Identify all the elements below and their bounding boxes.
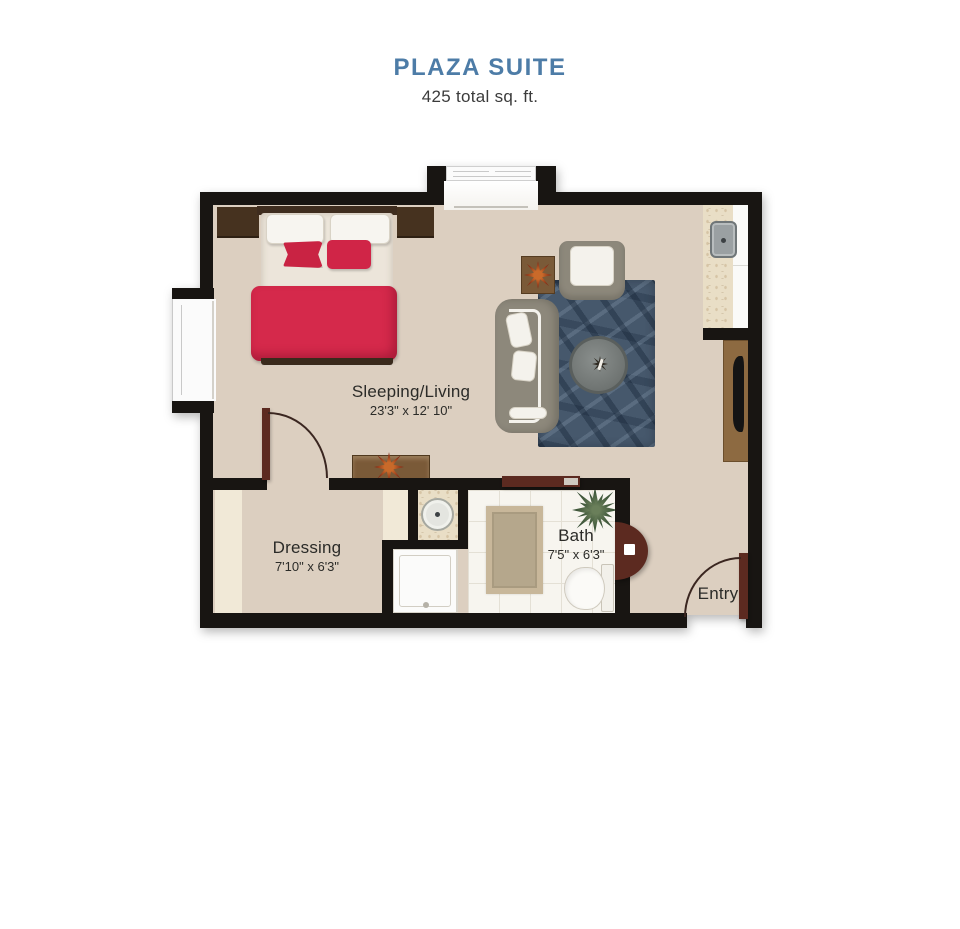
sliding-door-handle bbox=[564, 478, 578, 485]
armchair-cushion bbox=[570, 246, 614, 286]
wall-window-bay-right-riser bbox=[535, 166, 556, 205]
bath-sliding-door bbox=[502, 476, 580, 487]
wall-right bbox=[748, 192, 762, 628]
armchair bbox=[559, 241, 625, 300]
kitchenette-faucet bbox=[721, 238, 726, 243]
shower bbox=[392, 548, 458, 614]
bed bbox=[257, 206, 397, 366]
window-mullion bbox=[495, 171, 531, 172]
wall-left-lower bbox=[200, 410, 213, 628]
bed-blanket bbox=[251, 286, 397, 361]
bed-pillow-left bbox=[266, 214, 324, 244]
window-sill-line bbox=[454, 206, 528, 208]
room-label-bath: Bath 7'5" x 6'3" bbox=[548, 526, 605, 562]
shower-pan-line bbox=[399, 555, 451, 607]
window-mullion bbox=[453, 176, 531, 177]
wall-dressing-top-left bbox=[213, 478, 267, 490]
nightstand-right bbox=[397, 207, 434, 238]
wall-vanity-bottom bbox=[382, 540, 468, 549]
sofa-pillow-middle bbox=[510, 350, 537, 382]
top-bay-window bbox=[446, 166, 536, 181]
nightstand-left bbox=[217, 207, 259, 238]
room-name: Bath bbox=[548, 526, 605, 546]
round-coffee-table bbox=[569, 336, 628, 394]
vanity-faucet bbox=[435, 512, 440, 517]
floor-plan: Sleeping/Living 23'3" x 12' 10" Dressing… bbox=[0, 0, 960, 929]
window-mullion bbox=[453, 171, 489, 172]
shower-drain bbox=[423, 602, 429, 608]
window-mullion bbox=[181, 305, 182, 395]
side-table-plant-icon bbox=[524, 261, 552, 289]
wall-dressing-bath-top bbox=[329, 478, 630, 490]
left-bay-window bbox=[172, 299, 216, 401]
room-name: Dressing bbox=[273, 538, 342, 558]
room-name: Sleeping/Living bbox=[352, 382, 470, 402]
wall-bottom-left bbox=[200, 613, 687, 628]
sofa-bolster-bottom bbox=[509, 407, 547, 419]
room-dimensions: 23'3" x 12' 10" bbox=[352, 403, 470, 418]
wall-top-left bbox=[200, 192, 432, 205]
wall-vanity-left bbox=[408, 487, 418, 547]
window-mullion bbox=[212, 301, 214, 399]
wall-kitchenette-stub bbox=[703, 328, 762, 340]
room-label-dressing: Dressing 7'10" x 6'3" bbox=[273, 538, 342, 574]
bath-rug bbox=[486, 506, 543, 594]
dressing-closet-strip-right bbox=[383, 490, 409, 542]
toilet-bowl bbox=[564, 567, 605, 610]
wall-left-upper bbox=[200, 192, 213, 298]
room-label-sleeping-living: Sleeping/Living 23'3" x 12' 10" bbox=[352, 382, 470, 418]
wall-dressing-right-lower bbox=[382, 545, 393, 616]
bed-accent-pillow-left bbox=[283, 241, 323, 268]
vanity-sink bbox=[421, 498, 454, 531]
room-dimensions: 7'10" x 6'3" bbox=[273, 559, 342, 574]
bath-door-roundel-handle bbox=[624, 544, 635, 555]
bed-footboard bbox=[261, 358, 393, 365]
room-label-entry: Entry bbox=[698, 584, 739, 604]
tv bbox=[733, 356, 744, 432]
dressing-closet-strip-left bbox=[215, 490, 242, 613]
bed-accent-pillow-right bbox=[327, 240, 371, 269]
sofa bbox=[495, 299, 559, 433]
room-dimensions: 7'5" x 6'3" bbox=[548, 547, 605, 562]
room-name: Entry bbox=[698, 584, 739, 604]
top-bay-window-sill bbox=[444, 181, 538, 210]
window-frame-line bbox=[172, 299, 173, 401]
wall-top-right bbox=[550, 192, 762, 205]
kitchenette-sink bbox=[710, 221, 737, 258]
wall-vanity-right bbox=[458, 487, 468, 547]
counter-divider-line bbox=[733, 265, 748, 266]
